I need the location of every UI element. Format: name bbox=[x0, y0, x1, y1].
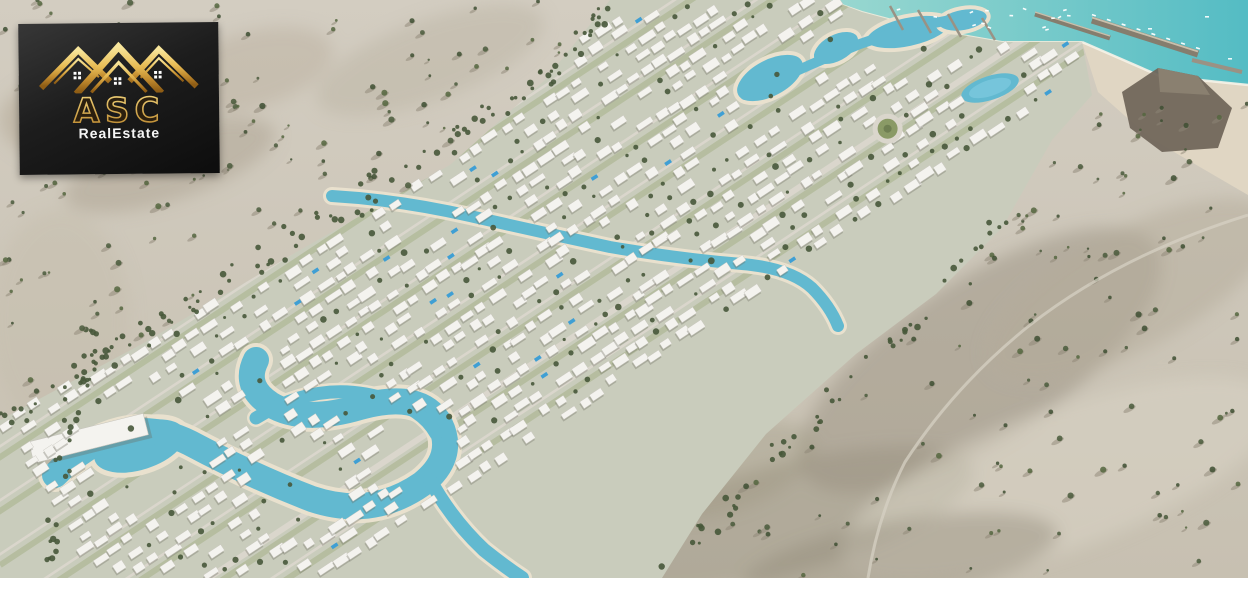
brand-logo: ASC RealEstate bbox=[18, 22, 220, 175]
triple-roof-houses-icon bbox=[34, 35, 203, 94]
aerial-render: ASC RealEstate bbox=[0, 0, 1248, 590]
brand-subtitle: RealEstate bbox=[78, 125, 160, 142]
bottom-margin bbox=[0, 578, 1248, 590]
roundabout bbox=[875, 116, 900, 141]
